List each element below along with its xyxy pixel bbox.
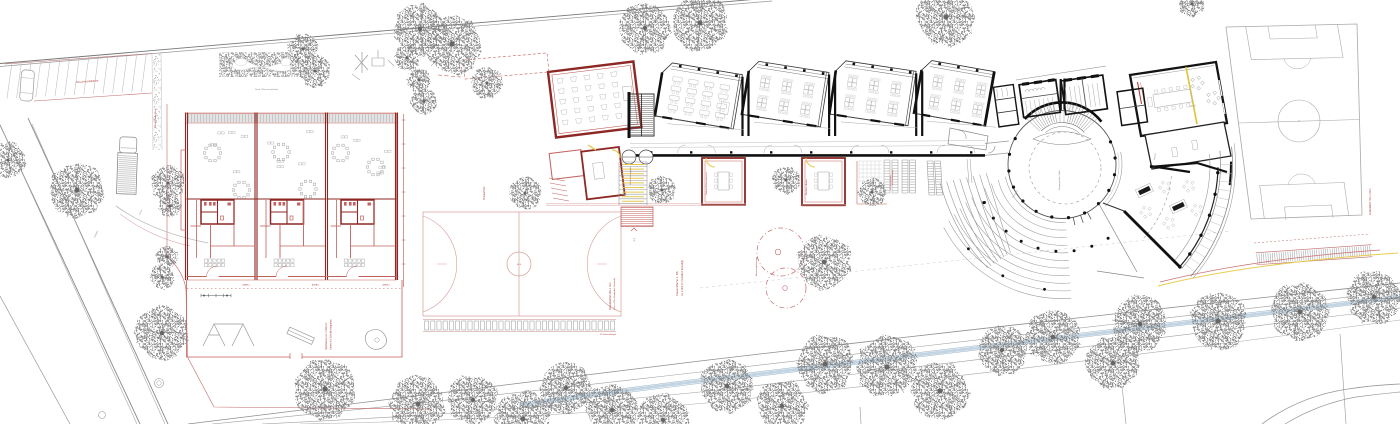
svg-text:ANFALL: ANFALL	[383, 284, 391, 287]
svg-text:Sand / Wasserspielplatz: Sand / Wasserspielplatz	[255, 88, 278, 91]
svg-text:Themenhöfe: Themenhöfe	[483, 186, 486, 200]
svg-text:ANFALL: ANFALL	[312, 284, 320, 287]
svg-text:Werkhof / Atelier: Werkhof / Atelier	[805, 179, 808, 195]
svg-text:Basketballfeld 26m x 14m: Basketballfeld 26m x 14m	[609, 283, 612, 310]
svg-text:Fußballfeld 70m x 50m: Fußballfeld 70m x 50m	[1368, 189, 1372, 215]
svg-text:Spielwiese ca. 1.900 m²: Spielwiese ca. 1.900 m²	[324, 322, 328, 350]
svg-text:Grünes Klassenzimmer: Grünes Klassenzimmer	[705, 172, 708, 195]
svg-text:Erschließung / Weg: Erschließung / Weg	[154, 108, 157, 128]
svg-text:ANFALL: ANFALL	[243, 284, 251, 287]
svg-text:Pausenfläche 1. BA: Pausenfläche 1. BA	[675, 271, 679, 296]
svg-text:ca. 2.400 m² (Schulhof befesti: ca. 2.400 m² (Schulhof befestigt)	[681, 260, 684, 296]
svg-text:18 Fahrradbügel: 18 Fahrradbügel	[891, 169, 894, 185]
svg-text:Garten für Schulkindergarten: Garten für Schulkindergarten	[330, 319, 333, 350]
svg-text:(15m x 28m Basketball Verband): (15m x 28m Basketball Verband)	[613, 278, 616, 310]
svg-text:Eingangshalle / Aula: Eingangshalle / Aula	[1058, 169, 1061, 190]
svg-text:Baumneupflanzung: Baumneupflanzung	[756, 256, 758, 276]
svg-text:32 Fahrradbügel: 32 Fahrradbügel	[600, 333, 617, 336]
svg-text:Verkehrsübungsplatz: Verkehrsübungsplatz	[629, 166, 632, 185]
